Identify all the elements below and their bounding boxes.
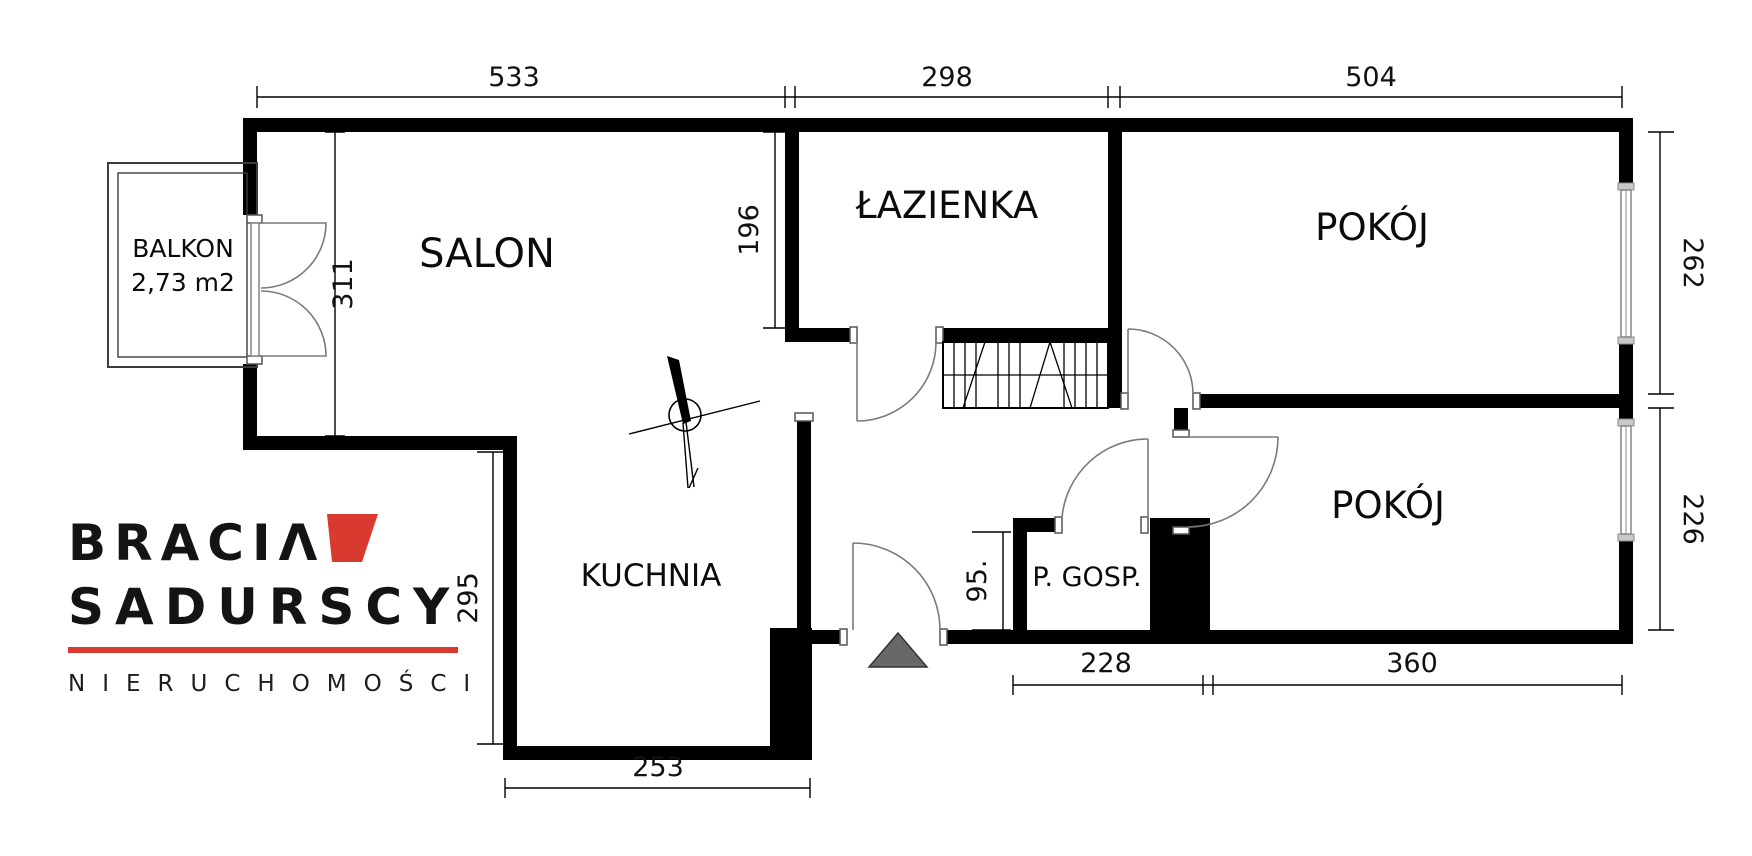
logo-red-rule — [68, 647, 458, 653]
wall-bottom — [947, 630, 1633, 644]
room-top-door-arc — [1128, 329, 1193, 394]
balcony-door-panel — [251, 223, 259, 356]
dim-room-top-height: 262 — [1677, 237, 1708, 289]
door-jamb — [1141, 517, 1148, 533]
wall-kitchen-right — [797, 420, 811, 630]
wall-bathroom-right — [1108, 132, 1122, 408]
agency-logo: BRACIΛ SADURSCY NIERUCHOMOŚCI — [68, 514, 487, 697]
entrance-door-arc — [853, 543, 940, 630]
entrance-triangle-icon — [869, 633, 927, 667]
dim-bottom-room: 360 — [1386, 648, 1438, 679]
door-jamb — [940, 629, 947, 645]
window-cap — [1618, 534, 1634, 541]
wall-bathroom-left — [785, 132, 799, 342]
dim-bathroom-height: 196 — [734, 204, 765, 256]
wall-right — [1619, 538, 1633, 644]
wall-rooms-divider — [1200, 394, 1619, 408]
wall-bottom — [811, 630, 840, 644]
logo-line1: BRACIΛ — [68, 514, 325, 572]
floor-plan-canvas: 533 298 504 311 295 196 95. 262 226 228 … — [0, 0, 1752, 856]
wall-right — [1619, 118, 1633, 187]
dim-salon-height: 311 — [328, 258, 359, 310]
utility-door-arc — [1062, 439, 1148, 518]
door-jamb — [1193, 393, 1200, 409]
wall-left — [243, 118, 257, 215]
balcony-door-arc — [261, 223, 326, 288]
dim-top-bathroom: 298 — [921, 62, 973, 93]
dimension-labels: 533 298 504 311 295 196 95. 262 226 228 … — [328, 62, 1708, 783]
room-label-balcony: BALKON — [132, 234, 234, 263]
window-cap — [1618, 419, 1634, 426]
door-jamb — [1121, 393, 1128, 409]
dim-top-salon: 533 — [488, 62, 540, 93]
wall-end-cap — [795, 413, 813, 421]
bathroom-door-arc — [857, 342, 936, 421]
wall-salon-bottom — [243, 436, 517, 450]
logo-line2: SADURSCY — [68, 578, 460, 636]
door-jamb — [1055, 517, 1062, 533]
wall-bathroom-bottom — [785, 328, 850, 342]
logo-red-mark-icon — [327, 514, 378, 562]
balcony-group — [108, 163, 326, 367]
wall-utility-left — [1013, 518, 1027, 644]
door-jamb — [850, 327, 857, 343]
door-jamb — [936, 327, 943, 343]
door-jamb — [247, 356, 262, 364]
room-label-room-top: POKÓJ — [1315, 205, 1429, 249]
door-jamb — [840, 629, 847, 645]
wall-bathroom-bottom — [943, 328, 1108, 342]
dim-top-room: 504 — [1345, 62, 1397, 93]
room-label-room-bottom: POKÓJ — [1331, 483, 1445, 527]
door-jamb — [1173, 527, 1189, 534]
north-arrow-icon — [629, 356, 760, 488]
dim-kitchen-width: 253 — [632, 752, 684, 783]
door-jamb — [247, 215, 262, 223]
logo-line3: NIERUCHOMOŚCI — [68, 669, 487, 697]
door-jamb — [1173, 430, 1189, 437]
dim-bottom-utility: 228 — [1080, 648, 1132, 679]
window-cap — [1618, 337, 1634, 344]
wall-pier — [1150, 518, 1210, 644]
wall-kitchen-left — [503, 436, 517, 760]
dim-utility-height: 95. — [962, 560, 993, 603]
window-cap — [1618, 183, 1634, 190]
balcony-area-label: 2,73 m2 — [131, 268, 235, 297]
wardrobe-hatch-icon — [943, 342, 1108, 408]
room-label-utility: P. GOSP. — [1032, 562, 1141, 593]
room-label-kitchen: KUCHNIA — [581, 558, 722, 594]
wall-kitchen-block — [770, 628, 812, 760]
dim-room-bottom-height: 226 — [1677, 493, 1708, 545]
wall-top — [243, 118, 1633, 132]
balcony-railing-outer — [108, 163, 257, 367]
floor-plan-page: 533 298 504 311 295 196 95. 262 226 228 … — [0, 0, 1752, 856]
wall-right — [1619, 340, 1633, 423]
room-label-salon: SALON — [419, 231, 555, 277]
balcony-railing-inner — [118, 173, 247, 357]
room-label-bathroom: ŁAZIENKA — [855, 184, 1038, 227]
room-bottom-door-arc — [1188, 437, 1278, 527]
balcony-door-arc — [261, 291, 326, 356]
